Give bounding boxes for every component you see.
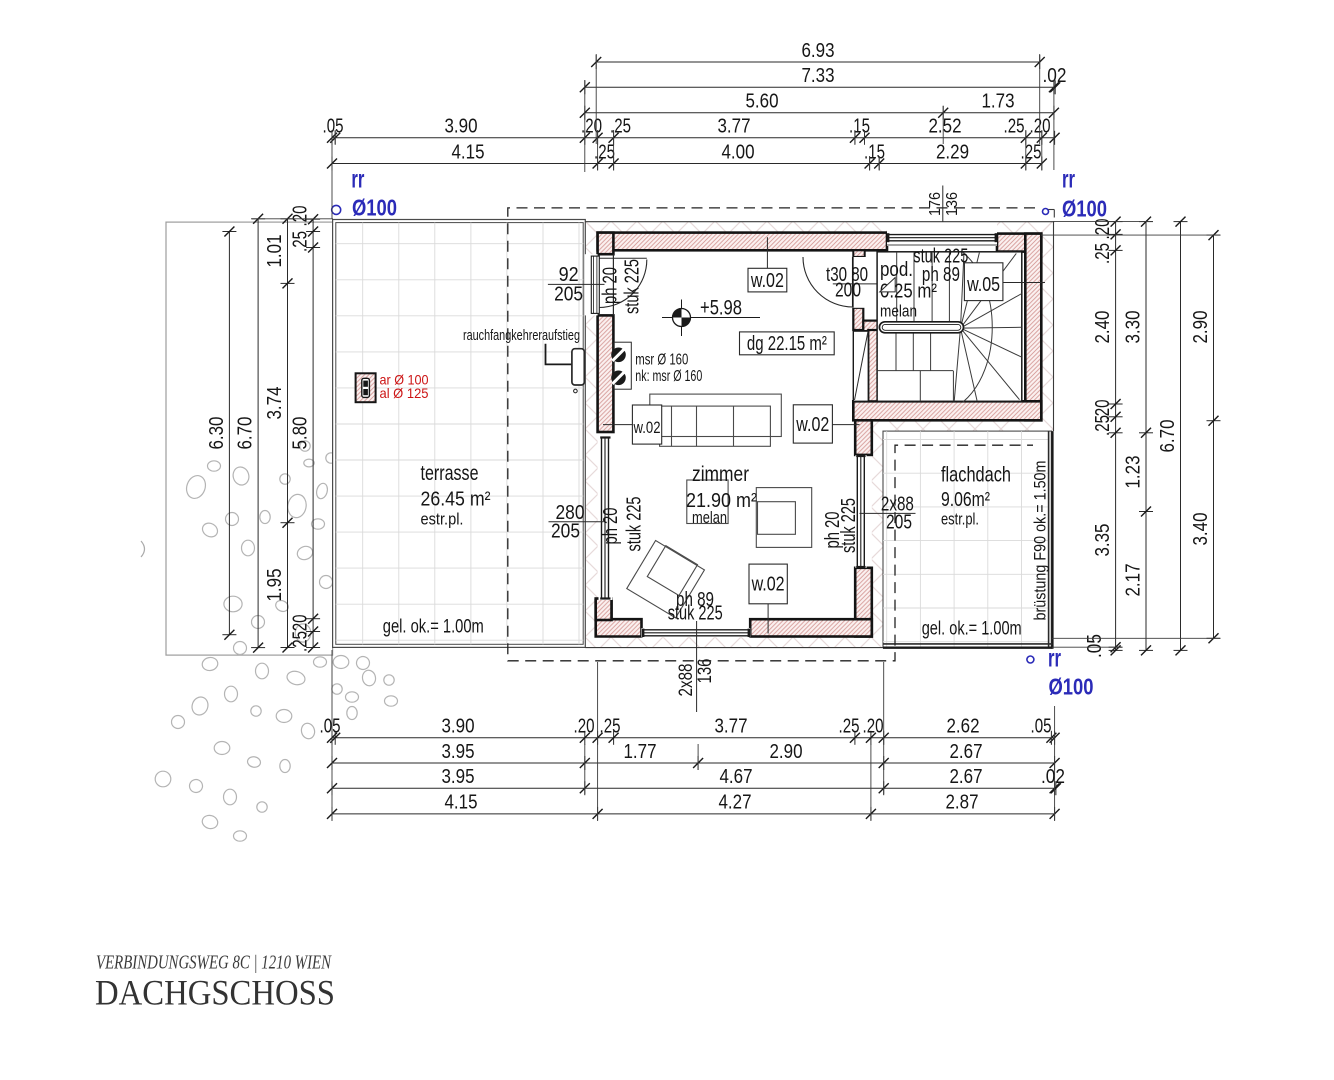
svg-text:ph 20: ph 20 <box>600 267 622 304</box>
svg-text:gel. ok.= 1.00m: gel. ok.= 1.00m <box>383 617 484 638</box>
svg-text:1.77: 1.77 <box>624 741 657 763</box>
svg-text:6.70: 6.70 <box>235 417 257 450</box>
svg-text:2.90: 2.90 <box>770 741 803 763</box>
svg-text:zimmer: zimmer <box>692 463 749 486</box>
svg-text:.02: .02 <box>1041 766 1065 788</box>
svg-text:176: 176 <box>927 192 944 216</box>
svg-text:al Ø 125: al Ø 125 <box>380 385 429 401</box>
svg-text:205: 205 <box>554 283 583 305</box>
svg-text:Ø100: Ø100 <box>352 195 397 221</box>
svg-text:26.45 m²: 26.45 m² <box>421 488 491 511</box>
svg-text:terrasse: terrasse <box>421 462 479 485</box>
svg-text:w.02: w.02 <box>633 419 661 437</box>
svg-text:7.33: 7.33 <box>802 65 835 87</box>
svg-text:1.23: 1.23 <box>1123 456 1145 489</box>
svg-text:3.90: 3.90 <box>442 716 475 738</box>
svg-text:DACHGSCHOSS: DACHGSCHOSS <box>95 973 335 1013</box>
svg-text:5.80: 5.80 <box>290 417 312 450</box>
svg-text:rr: rr <box>1062 166 1075 194</box>
svg-text:.20: .20 <box>290 206 312 227</box>
svg-text:4.15: 4.15 <box>445 792 478 814</box>
svg-text:w.05: w.05 <box>966 274 1000 296</box>
svg-text:4.27: 4.27 <box>719 792 752 814</box>
svg-text:1.73: 1.73 <box>982 91 1015 113</box>
svg-text:w.02: w.02 <box>750 270 784 292</box>
svg-text:2.87: 2.87 <box>946 792 979 814</box>
svg-text:gel. ok.= 1.00m: gel. ok.= 1.00m <box>922 619 1022 640</box>
svg-text:.20: .20 <box>574 716 595 738</box>
svg-text:estr.pl.: estr.pl. <box>941 510 979 529</box>
svg-text:2.29: 2.29 <box>936 141 969 163</box>
svg-text:stuk 225: stuk 225 <box>622 259 644 314</box>
svg-text:200: 200 <box>835 279 861 301</box>
svg-text:.25: .25 <box>1004 116 1025 138</box>
svg-text:rr: rr <box>351 166 364 194</box>
svg-text:2.52: 2.52 <box>929 116 962 138</box>
svg-text:3.95: 3.95 <box>442 766 475 788</box>
svg-text:6.70: 6.70 <box>1157 420 1179 453</box>
svg-text:6.93: 6.93 <box>802 40 835 62</box>
svg-text:.25: .25 <box>290 231 312 252</box>
svg-text:1.95: 1.95 <box>264 569 286 602</box>
svg-text:estr.pl.: estr.pl. <box>421 510 464 529</box>
svg-text:stuk 225: stuk 225 <box>838 498 860 553</box>
svg-text:ph 89: ph 89 <box>922 264 960 286</box>
svg-text:.02: .02 <box>1043 65 1067 87</box>
svg-text:VERBINDUNGSWEG 8C | 1210 WIEN: VERBINDUNGSWEG 8C | 1210 WIEN <box>96 953 332 974</box>
svg-text:rauchfangkehreraufstieg: rauchfangkehreraufstieg <box>463 328 580 344</box>
svg-text:+5.98: +5.98 <box>700 297 742 320</box>
svg-text:3.30: 3.30 <box>1123 311 1145 344</box>
svg-text:4.67: 4.67 <box>720 766 753 788</box>
svg-text:.20: .20 <box>581 116 602 138</box>
svg-text:4.15: 4.15 <box>452 141 485 163</box>
svg-text:2.40: 2.40 <box>1092 311 1114 344</box>
svg-text:.25: .25 <box>290 631 312 652</box>
svg-text:.20: .20 <box>863 716 884 738</box>
svg-text:.05: .05 <box>323 116 344 138</box>
svg-text:3.95: 3.95 <box>442 741 475 763</box>
svg-text:.25: .25 <box>600 716 621 738</box>
svg-text:nk: msr Ø 160: nk: msr Ø 160 <box>635 368 702 385</box>
svg-text:.05: .05 <box>1031 716 1052 738</box>
svg-text:melan: melan <box>880 302 917 321</box>
svg-text:.15: .15 <box>864 141 885 163</box>
svg-text:2.67: 2.67 <box>950 766 983 788</box>
svg-text:2.90: 2.90 <box>1190 311 1212 344</box>
svg-text:dg 22.15 m²: dg 22.15 m² <box>747 333 827 355</box>
svg-text:.25: .25 <box>839 716 860 738</box>
svg-text:.05: .05 <box>320 716 341 738</box>
svg-text:.15: .15 <box>849 116 870 138</box>
svg-text:3.35: 3.35 <box>1092 524 1114 557</box>
svg-text:stuk 225: stuk 225 <box>668 603 723 625</box>
svg-text:Ø100: Ø100 <box>1062 196 1107 222</box>
svg-text:stuk 225: stuk 225 <box>624 497 646 552</box>
svg-text:3.40: 3.40 <box>1190 513 1212 546</box>
svg-text:3.77: 3.77 <box>718 116 751 138</box>
svg-text:2.62: 2.62 <box>947 716 980 738</box>
svg-text:3.77: 3.77 <box>715 716 748 738</box>
svg-text:pod.: pod. <box>880 259 913 281</box>
svg-text:rr: rr <box>1048 645 1061 673</box>
svg-text:3.90: 3.90 <box>445 116 478 138</box>
svg-text:.25: .25 <box>1021 141 1042 163</box>
svg-text:.05: .05 <box>1084 634 1106 658</box>
svg-text:136: 136 <box>695 659 716 684</box>
svg-text:melan: melan <box>692 508 727 527</box>
svg-text:Ø100: Ø100 <box>1049 674 1094 700</box>
svg-text:5.60: 5.60 <box>746 91 779 113</box>
svg-text:flachdach: flachdach <box>941 464 1011 487</box>
svg-text:9.06m²: 9.06m² <box>941 488 990 511</box>
svg-text:136: 136 <box>944 192 961 216</box>
svg-text:w.02: w.02 <box>751 574 785 596</box>
svg-text:2.17: 2.17 <box>1123 564 1145 597</box>
svg-text:.25: .25 <box>1092 415 1114 436</box>
svg-text:brüstung F90 ok.= 1.50m: brüstung F90 ok.= 1.50m <box>1031 461 1050 621</box>
svg-text:msr Ø 160: msr Ø 160 <box>635 351 688 368</box>
svg-text:1.01: 1.01 <box>264 235 286 268</box>
svg-text:4.00: 4.00 <box>722 141 755 163</box>
svg-text:2x88: 2x88 <box>676 664 697 697</box>
svg-text:w.02: w.02 <box>795 414 829 436</box>
svg-text:ph 20: ph 20 <box>600 508 622 545</box>
svg-text:205: 205 <box>551 521 580 543</box>
svg-text:3.74: 3.74 <box>264 387 286 420</box>
svg-text:6.30: 6.30 <box>206 417 228 450</box>
svg-text:205: 205 <box>886 512 912 534</box>
svg-text:2.67: 2.67 <box>950 741 983 763</box>
svg-text:.25: .25 <box>1092 243 1114 264</box>
